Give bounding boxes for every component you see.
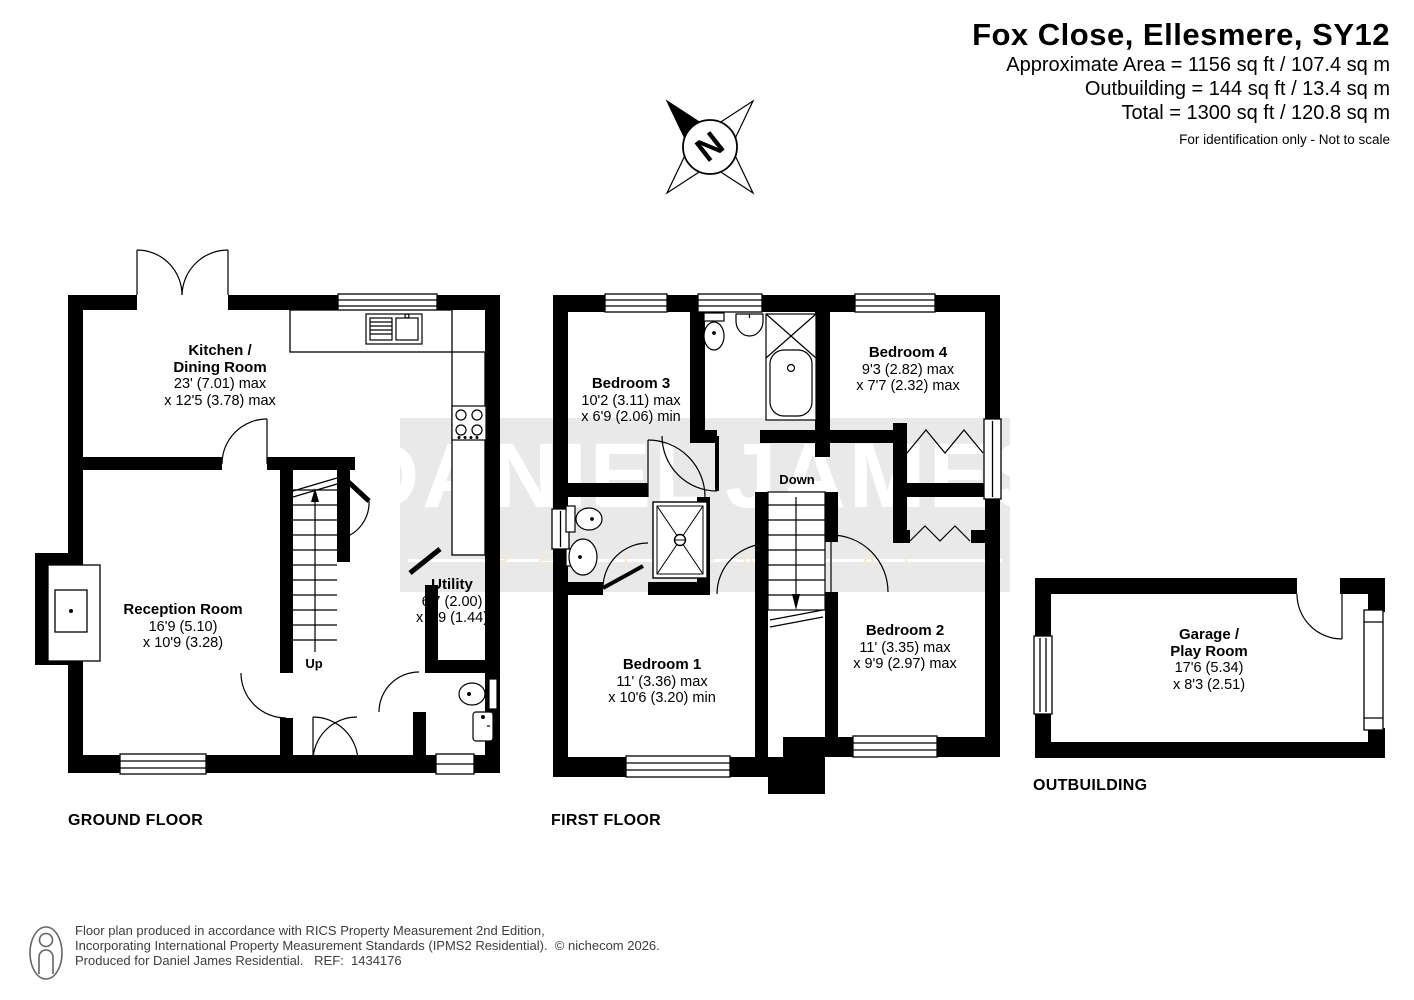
wc-toilet [459, 679, 497, 709]
wc-sink [473, 712, 493, 741]
room-label-kitchen: Kitchen / Dining Room 23' (7.01) max x 1… [164, 343, 276, 409]
total-area: Total = 1300 sq ft / 120.8 sq m [972, 101, 1390, 125]
header: Fox Close, Ellesmere, SY12 Approximate A… [972, 16, 1390, 148]
footer-line-3: Produced for Daniel James Residential. R… [75, 954, 660, 969]
stairs-up [293, 478, 337, 657]
room-label-utility: Utility 6'7 (2.00) x 4'9 (1.44) [416, 577, 488, 627]
kitchen-sink [366, 314, 422, 344]
footer: Floor plan produced in accordance with R… [27, 924, 660, 982]
outbuilding-label: OUTBUILDING [1033, 777, 1147, 795]
room-label-bedroom1: Bedroom 1 11' (3.36) max x 10'6 (3.20) m… [608, 657, 716, 707]
first-floor-label: FIRST FLOOR [551, 812, 661, 830]
stairs-down [768, 492, 825, 642]
bathtub [766, 314, 816, 420]
approximate-area: Approximate Area = 1156 sq ft / 107.4 sq… [972, 53, 1390, 77]
ground-floor-plan [35, 250, 500, 774]
footer-line-2: Incorporating International Property Mea… [75, 939, 660, 954]
fireplace [48, 565, 100, 661]
page-title: Fox Close, Ellesmere, SY12 [972, 16, 1390, 53]
floorplan-drawing: N [0, 0, 1414, 1000]
scale-disclaimer: For identification only - Not to scale [972, 132, 1390, 148]
bathroom-sink [736, 314, 763, 336]
room-label-reception: Reception Room 16'9 (5.10) x 10'9 (3.28) [123, 602, 242, 652]
room-label-bedroom3: Bedroom 3 10'2 (3.11) max x 6'9 (2.06) m… [581, 376, 680, 426]
person-logo-icon [27, 924, 65, 982]
outbuilding-door [1297, 594, 1342, 639]
stairs-up-label: Up [305, 656, 322, 671]
room-label-bedroom2: Bedroom 2 11' (3.35) max x 9'9 (2.97) ma… [853, 623, 957, 673]
shower-toilet [566, 506, 602, 532]
room-label-garage: Garage / Play Room 17'6 (5.34) x 8'3 (2.… [1170, 627, 1248, 693]
footer-line-1: Floor plan produced in accordance with R… [75, 924, 660, 939]
ground-floor-label: GROUND FLOOR [68, 812, 203, 830]
outbuilding-area: Outbuilding = 144 sq ft / 13.4 sq m [972, 77, 1390, 101]
shower-tray [653, 502, 707, 578]
first-floor-doors [603, 436, 888, 594]
compass-icon: N [667, 101, 753, 193]
stairs-down-label: Down [779, 472, 814, 487]
floorplan-page: { "header": { "title": "Fox Close, Elles… [0, 0, 1414, 1000]
hob [452, 406, 486, 440]
room-label-bedroom4: Bedroom 4 9'3 (2.82) max x 7'7 (2.32) ma… [856, 345, 960, 395]
bathroom-toilet [704, 313, 724, 350]
shower-sink [566, 539, 597, 575]
footer-text: Floor plan produced in accordance with R… [75, 924, 660, 968]
